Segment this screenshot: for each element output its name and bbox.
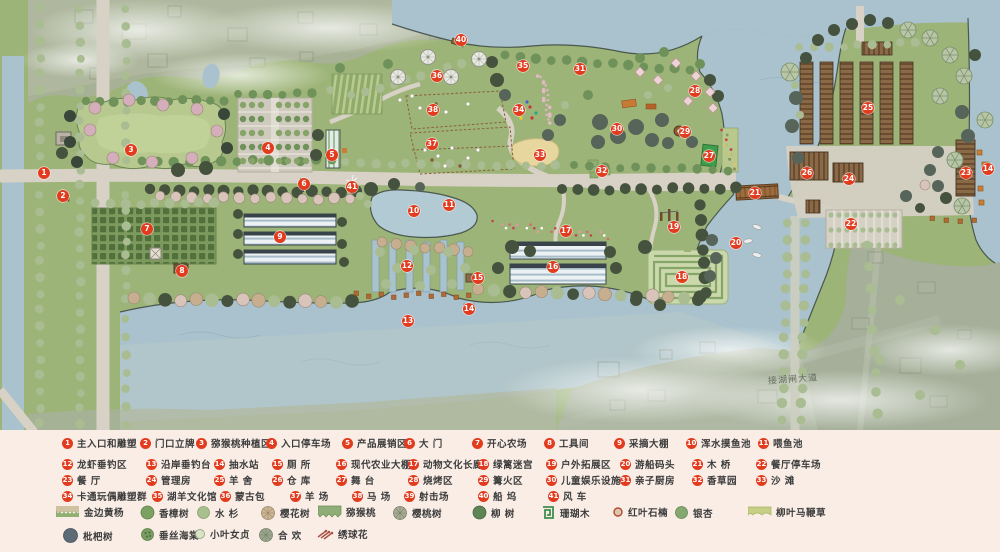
legend-plant-kiwi-band: 猕猴桃: [318, 505, 376, 519]
map-marker-29: 29: [679, 126, 691, 138]
legend-item-5: 5产品展销区: [342, 436, 407, 450]
map-marker-23: 23: [960, 167, 972, 179]
legend-plant-label: 珊瑚木: [560, 506, 590, 520]
legend-plant-label: 樱桃树: [412, 506, 442, 520]
legend-item-label: 入口停车场: [281, 436, 331, 450]
legend-plant-label: 水 杉: [215, 506, 239, 520]
map-marker-16: 16: [547, 261, 559, 273]
map-marker-22: 22: [845, 218, 857, 230]
map-marker-layer: 1234567891011121314141516171819202122232…: [0, 0, 1000, 430]
legend-item-label: 厕 所: [287, 457, 311, 471]
legend-item-label: 亲子厨房: [635, 473, 675, 487]
legend-number-badge: 13: [146, 459, 157, 470]
legend-item-2: 2门口立牌: [140, 436, 195, 450]
legend-item-33: 33沙 滩: [756, 473, 795, 487]
map-marker-9: 9: [274, 231, 286, 243]
legend-plant-label: 樱花树: [280, 506, 310, 520]
legend-item-17: 17动物文化长廊: [408, 457, 483, 471]
map-marker-17: 17: [560, 225, 572, 237]
legend-number-badge: 12: [62, 459, 73, 470]
legend-item-38: 38马 场: [352, 489, 391, 503]
legend-plant-coral-wood: 珊瑚木: [540, 505, 590, 521]
albizia-icon: [258, 527, 274, 543]
legend-plant-label: 猕猴桃: [346, 505, 376, 519]
hedge-band-icon: [56, 505, 80, 519]
legend-item-label: 管理房: [161, 473, 191, 487]
legend-item-37: 37羊 场: [290, 489, 329, 503]
legend-item-label: 抽水站: [229, 457, 259, 471]
map-marker-5: 5: [326, 149, 338, 161]
legend-item-23: 23餐 厅: [62, 473, 101, 487]
crabapple-icon: [140, 527, 155, 542]
legend-item-11: 11喂鱼池: [758, 436, 803, 450]
legend-item-label: 主入口和雕塑: [77, 436, 137, 450]
legend-number-badge: 10: [686, 438, 697, 449]
map-marker-8: 8: [176, 265, 188, 277]
legend-plant-metasequoia: 水 杉: [196, 505, 239, 520]
legend-item-label: 射击场: [419, 489, 449, 503]
legend-item-label: 香草园: [707, 473, 737, 487]
legend-item-label: 采摘大棚: [629, 436, 669, 450]
site-plan-map: 1234567891011121314141516171819202122232…: [0, 0, 1000, 430]
legend-number-badge: 8: [544, 438, 555, 449]
legend-number-badge: 9: [614, 438, 625, 449]
legend-item-22: 22餐厅停车场: [756, 457, 821, 471]
map-marker-25: 25: [862, 102, 874, 114]
legend-number-badge: 40: [478, 491, 489, 502]
legend-number-badge: 39: [404, 491, 415, 502]
map-marker-41: 41: [346, 181, 358, 193]
legend-number-badge: 5: [342, 438, 353, 449]
legend-item-16: 16现代农业大棚: [336, 457, 411, 471]
legend-item-21: 21木 桥: [692, 457, 731, 471]
legend-number-badge: 33: [756, 475, 767, 486]
legend-item-14: 14抽水站: [214, 457, 259, 471]
legend-number-badge: 32: [692, 475, 703, 486]
map-marker-6: 6: [298, 178, 310, 190]
map-marker-30: 30: [611, 123, 623, 135]
legend-number-badge: 25: [214, 475, 225, 486]
coral-wood-icon: [540, 505, 556, 521]
photinia-icon: [612, 506, 624, 518]
legend-number-badge: 34: [62, 491, 73, 502]
privet-icon: [194, 528, 206, 540]
loquat-icon: [62, 527, 79, 544]
legend-item-18: 18绿篱迷宫: [478, 457, 533, 471]
legend-item-label: 开心农场: [487, 436, 527, 450]
legend-number-badge: 31: [620, 475, 631, 486]
legend-item-label: 绿篱迷宫: [493, 457, 533, 471]
legend-item-13: 13沿岸垂钓台: [146, 457, 211, 471]
legend-item-30: 30儿童娱乐设施: [546, 473, 621, 487]
legend-item-label: 卡通玩偶雕塑群: [77, 489, 147, 503]
legend-item-label: 羊 舍: [229, 473, 253, 487]
legend-item-10: 10浑水摸鱼池: [686, 436, 751, 450]
map-marker-32: 32: [596, 165, 608, 177]
legend-item-15: 15厕 所: [272, 457, 311, 471]
kiwi-band-icon: [318, 505, 342, 519]
legend-plant-label: 红叶石楠: [628, 505, 668, 519]
legend-number-badge: 22: [756, 459, 767, 470]
legend-item-label: 龙虾垂钓区: [77, 457, 127, 471]
legend-item-label: 游船码头: [635, 457, 675, 471]
legend-item-34: 34卡通玩偶雕塑群: [62, 489, 147, 503]
legend-plant-crabapple: 垂丝海棠: [140, 527, 199, 542]
legend-number-badge: 4: [266, 438, 277, 449]
legend-item-19: 19户外拓展区: [546, 457, 611, 471]
legend-plant-label: 柳叶马鞭草: [776, 505, 826, 519]
map-marker-13: 13: [402, 315, 414, 327]
legend-item-label: 沙 滩: [771, 473, 795, 487]
map-marker-11: 11: [443, 199, 455, 211]
legend-item-9: 9采摘大棚: [614, 436, 669, 450]
verbena-band-icon: [748, 506, 772, 519]
legend-plant-loquat: 枇杷树: [62, 527, 113, 544]
map-marker-33: 33: [534, 149, 546, 161]
legend-item-label: 羊 场: [305, 489, 329, 503]
legend-number-badge: 21: [692, 459, 703, 470]
legend-item-8: 8工具间: [544, 436, 589, 450]
legend-item-label: 产品展销区: [357, 436, 407, 450]
legend-plant-label: 香樟树: [159, 506, 189, 520]
legend-item-41: 41风 车: [548, 489, 587, 503]
legend-item-26: 26仓 库: [272, 473, 311, 487]
legend-item-label: 仓 库: [287, 473, 311, 487]
legend-plant-label: 小叶女贞: [210, 527, 250, 541]
legend-number-badge: 26: [272, 475, 283, 486]
legend-item-36: 36蒙古包: [220, 489, 265, 503]
map-marker-28: 28: [689, 85, 701, 97]
metasequoia-icon: [196, 505, 211, 520]
legend-plant-cherry: 樱桃树: [392, 505, 442, 521]
legend-item-label: 浑水摸鱼池: [701, 436, 751, 450]
map-marker-24: 24: [843, 173, 855, 185]
map-marker-4: 4: [262, 142, 274, 154]
legend-plant-hedge-band: 金边黄杨: [56, 505, 124, 519]
legend-item-label: 篝火区: [493, 473, 523, 487]
legend-item-label: 餐厅停车场: [771, 457, 821, 471]
legend-item-label: 沿岸垂钓台: [161, 457, 211, 471]
legend-item-20: 20游船码头: [620, 457, 675, 471]
legend-number-badge: 20: [620, 459, 631, 470]
legend-item-32: 32香草园: [692, 473, 737, 487]
map-marker-14: 14: [982, 163, 994, 175]
legend-item-label: 烧烤区: [423, 473, 453, 487]
camphor-icon: [140, 505, 155, 520]
map-marker-21: 21: [749, 187, 761, 199]
legend-plant-willow-tree: 柳 树: [472, 505, 515, 520]
map-marker-2: 2: [57, 190, 69, 202]
legend-number-badge: 24: [146, 475, 157, 486]
legend-number-badge: 35: [152, 491, 163, 502]
legend-number-badge: 16: [336, 459, 347, 470]
legend-item-3: 3猕猴桃种植区: [196, 436, 271, 450]
legend-plant-label: 金边黄杨: [84, 505, 124, 519]
legend-panel: 1主入口和雕塑2门口立牌3猕猴桃种植区4入口停车场5产品展销区6大 门7开心农场…: [0, 430, 1000, 552]
map-marker-15: 15: [472, 272, 484, 284]
legend-item-1: 1主入口和雕塑: [62, 436, 137, 450]
map-marker-3: 3: [125, 144, 137, 156]
legend-plant-ginkgo: 银杏: [674, 505, 713, 520]
legend-item-25: 25羊 舍: [214, 473, 253, 487]
legend-item-7: 7开心农场: [472, 436, 527, 450]
legend-number-badge: 28: [408, 475, 419, 486]
legend-plant-privet: 小叶女贞: [194, 527, 250, 541]
map-marker-18: 18: [676, 271, 688, 283]
legend-plant-cherry-blossom: 樱花树: [260, 505, 310, 521]
map-marker-19: 19: [668, 221, 680, 233]
legend-item-label: 餐 厅: [77, 473, 101, 487]
legend-item-31: 31亲子厨房: [620, 473, 675, 487]
legend-item-6: 6大 门: [404, 436, 443, 450]
legend-item-label: 蒙古包: [235, 489, 265, 503]
legend-number-badge: 19: [546, 459, 557, 470]
map-marker-34: 34: [513, 104, 525, 116]
masterplan-image: 1234567891011121314141516171819202122232…: [0, 0, 1000, 552]
legend-item-28: 28烧烤区: [408, 473, 453, 487]
legend-item-label: 户外拓展区: [561, 457, 611, 471]
legend-plant-photinia: 红叶石楠: [612, 505, 668, 519]
legend-number-badge: 17: [408, 459, 419, 470]
legend-item-label: 现代农业大棚: [351, 457, 411, 471]
map-marker-12: 12: [401, 260, 413, 272]
legend-plant-camphor: 香樟树: [140, 505, 189, 520]
map-marker-20: 20: [730, 237, 742, 249]
map-marker-7: 7: [141, 223, 153, 235]
legend-item-29: 29篝火区: [478, 473, 523, 487]
legend-number-badge: 18: [478, 459, 489, 470]
legend-item-label: 动物文化长廊: [423, 457, 483, 471]
legend-number-badge: 1: [62, 438, 73, 449]
legend-number-badge: 23: [62, 475, 73, 486]
legend-item-label: 船 坞: [493, 489, 517, 503]
legend-number-badge: 27: [336, 475, 347, 486]
legend-item-label: 儿童娱乐设施: [561, 473, 621, 487]
legend-plant-label: 枇杷树: [83, 529, 113, 543]
legend-item-label: 湖羊文化馆: [167, 489, 217, 503]
legend-item-12: 12龙虾垂钓区: [62, 457, 127, 471]
legend-plant-label: 银杏: [693, 506, 713, 520]
legend-item-4: 4入口停车场: [266, 436, 331, 450]
legend-number-badge: 36: [220, 491, 231, 502]
map-marker-1: 1: [38, 167, 50, 179]
legend-plant-albizia: 合 欢: [258, 527, 302, 543]
legend-item-label: 马 场: [367, 489, 391, 503]
legend-item-label: 喂鱼池: [773, 436, 803, 450]
cherry-blossom-icon: [260, 505, 276, 521]
legend-item-label: 风 车: [563, 489, 587, 503]
legend-plant-label: 合 欢: [278, 528, 302, 542]
legend-item-24: 24管理房: [146, 473, 191, 487]
legend-item-label: 工具间: [559, 436, 589, 450]
legend-number-badge: 41: [548, 491, 559, 502]
legend-plant-label: 柳 树: [491, 506, 515, 520]
legend-plant-label: 绣球花: [338, 527, 368, 541]
map-marker-27: 27: [703, 150, 715, 162]
map-marker-40: 40: [455, 34, 467, 46]
legend-number-badge: 30: [546, 475, 557, 486]
cherry-icon: [392, 505, 408, 521]
legend-number-badge: 11: [758, 438, 769, 449]
legend-item-label: 门口立牌: [155, 436, 195, 450]
willow-tree-icon: [472, 505, 487, 520]
legend-number-badge: 29: [478, 475, 489, 486]
legend-plant-verbena-band: 柳叶马鞭草: [748, 505, 826, 519]
map-marker-36: 36: [431, 70, 443, 82]
legend-item-label: 舞 台: [351, 473, 375, 487]
legend-plant-label: 垂丝海棠: [159, 528, 199, 542]
map-marker-31: 31: [574, 63, 586, 75]
map-marker-26: 26: [801, 167, 813, 179]
legend-item-label: 猕猴桃种植区: [211, 436, 271, 450]
map-marker-14: 14: [463, 303, 475, 315]
legend-plant-hydrangea: 绣球花: [316, 527, 368, 541]
hydrangea-icon: [316, 527, 334, 541]
legend-item-39: 39射击场: [404, 489, 449, 503]
legend-item-label: 大 门: [419, 436, 443, 450]
legend-item-35: 35湖羊文化馆: [152, 489, 217, 503]
map-marker-35: 35: [517, 60, 529, 72]
legend-number-badge: 14: [214, 459, 225, 470]
map-marker-37: 37: [426, 138, 438, 150]
ginkgo-icon: [674, 505, 689, 520]
legend-item-label: 木 桥: [707, 457, 731, 471]
legend-number-badge: 2: [140, 438, 151, 449]
legend-number-badge: 37: [290, 491, 301, 502]
map-marker-38: 38: [427, 104, 439, 116]
legend-item-40: 40船 坞: [478, 489, 517, 503]
map-marker-10: 10: [408, 205, 420, 217]
legend-item-27: 27舞 台: [336, 473, 375, 487]
legend-number-badge: 3: [196, 438, 207, 449]
legend-number-badge: 6: [404, 438, 415, 449]
legend-number-badge: 38: [352, 491, 363, 502]
legend-number-badge: 7: [472, 438, 483, 449]
legend-number-badge: 15: [272, 459, 283, 470]
